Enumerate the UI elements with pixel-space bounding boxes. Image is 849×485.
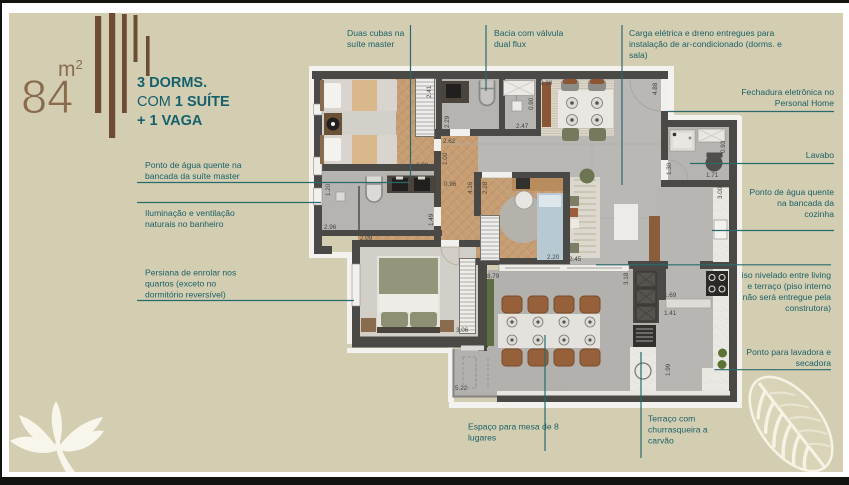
svg-text:Terraço com: Terraço com — [648, 414, 695, 424]
svg-text:3.00: 3.00 — [416, 162, 429, 169]
svg-text:secadora: secadora — [796, 358, 832, 368]
svg-text:churrasqueira a: churrasqueira a — [648, 425, 708, 435]
svg-text:instalação de ar-condicionado: instalação de ar-condicionado (dorms. e — [629, 39, 782, 49]
svg-text:Ponto de água quente: Ponto de água quente — [749, 187, 834, 197]
svg-text:0.96: 0.96 — [444, 181, 457, 188]
svg-text:3.06: 3.06 — [456, 327, 469, 334]
svg-text:Carga elétrica e dreno entregu: Carga elétrica e dreno entregues para — [629, 28, 774, 38]
svg-text:2.41: 2.41 — [426, 85, 433, 98]
svg-text:Ponto de água quente na: Ponto de água quente na — [145, 160, 242, 170]
svg-text:dormitório reversível): dormitório reversível) — [145, 290, 226, 300]
svg-text:1.00: 1.00 — [442, 152, 449, 165]
svg-text:4.16: 4.16 — [467, 181, 474, 194]
svg-text:2.45: 2.45 — [569, 256, 582, 263]
svg-text:COM 1 SUÍTE: COM 1 SUÍTE — [137, 93, 230, 110]
svg-text:Fechadura eletrônica no: Fechadura eletrônica no — [741, 87, 834, 97]
svg-text:carvão: carvão — [648, 436, 674, 446]
svg-text:1.49: 1.49 — [428, 213, 435, 226]
svg-text:3 DORMS.: 3 DORMS. — [137, 75, 207, 91]
svg-text:bancada da suíte master: bancada da suíte master — [145, 171, 240, 181]
svg-text:5.22: 5.22 — [455, 385, 468, 392]
svg-text:quartos (exceto no: quartos (exceto no — [145, 279, 216, 289]
svg-text:Duas cubas na: Duas cubas na — [347, 28, 405, 38]
svg-text:2.62: 2.62 — [443, 138, 456, 145]
svg-text:Lavabo: Lavabo — [806, 150, 834, 160]
svg-text:Persiana de enrolar nos: Persiana de enrolar nos — [145, 268, 236, 278]
svg-text:Ponto para lavadora e: Ponto para lavadora e — [746, 347, 831, 357]
svg-text:construtora): construtora) — [785, 303, 831, 313]
svg-text:1.41: 1.41 — [664, 310, 677, 317]
svg-text:4.88: 4.88 — [652, 82, 659, 95]
svg-text:suíte master: suíte master — [347, 39, 394, 49]
svg-text:+ 1 VAGA: + 1 VAGA — [137, 113, 203, 129]
svg-text:não será entregue pela: não será entregue pela — [743, 292, 832, 302]
svg-text:1.69: 1.69 — [664, 292, 677, 299]
svg-text:2.29: 2.29 — [444, 115, 451, 128]
svg-text:Bacia com válvula: Bacia com válvula — [494, 28, 563, 38]
svg-text:na bancada da: na bancada da — [777, 198, 834, 208]
svg-text:1.99: 1.99 — [665, 363, 672, 376]
svg-text:2.28: 2.28 — [482, 181, 489, 194]
svg-text:8.79: 8.79 — [487, 273, 500, 280]
svg-text:0.90: 0.90 — [528, 97, 535, 110]
svg-text:2.20: 2.20 — [547, 254, 560, 261]
svg-text:1.30: 1.30 — [666, 162, 673, 175]
svg-text:cozinha: cozinha — [804, 209, 834, 219]
svg-text:dual flux: dual flux — [494, 39, 527, 49]
svg-text:9.20: 9.20 — [540, 80, 553, 87]
svg-text:lugares: lugares — [468, 433, 496, 443]
svg-text:2.47: 2.47 — [516, 123, 529, 130]
svg-text:Iluminação e ventilação: Iluminação e ventilação — [145, 208, 235, 218]
svg-text:Personal Home: Personal Home — [775, 98, 834, 108]
svg-text:naturais no banheiro: naturais no banheiro — [145, 219, 224, 229]
svg-text:2.09: 2.09 — [360, 235, 373, 242]
svg-text:e terraço (piso interno: e terraço (piso interno — [747, 281, 831, 291]
svg-text:3.18: 3.18 — [623, 272, 630, 285]
svg-text:3.00: 3.00 — [717, 186, 724, 199]
svg-text:2.96: 2.96 — [324, 224, 337, 231]
svg-text:sala): sala) — [629, 50, 648, 60]
svg-text:Piso nivelado entre living: Piso nivelado entre living — [736, 270, 831, 280]
svg-text:1.71: 1.71 — [706, 172, 719, 179]
svg-text:1.20: 1.20 — [325, 183, 332, 196]
svg-text:0.93: 0.93 — [720, 140, 727, 153]
